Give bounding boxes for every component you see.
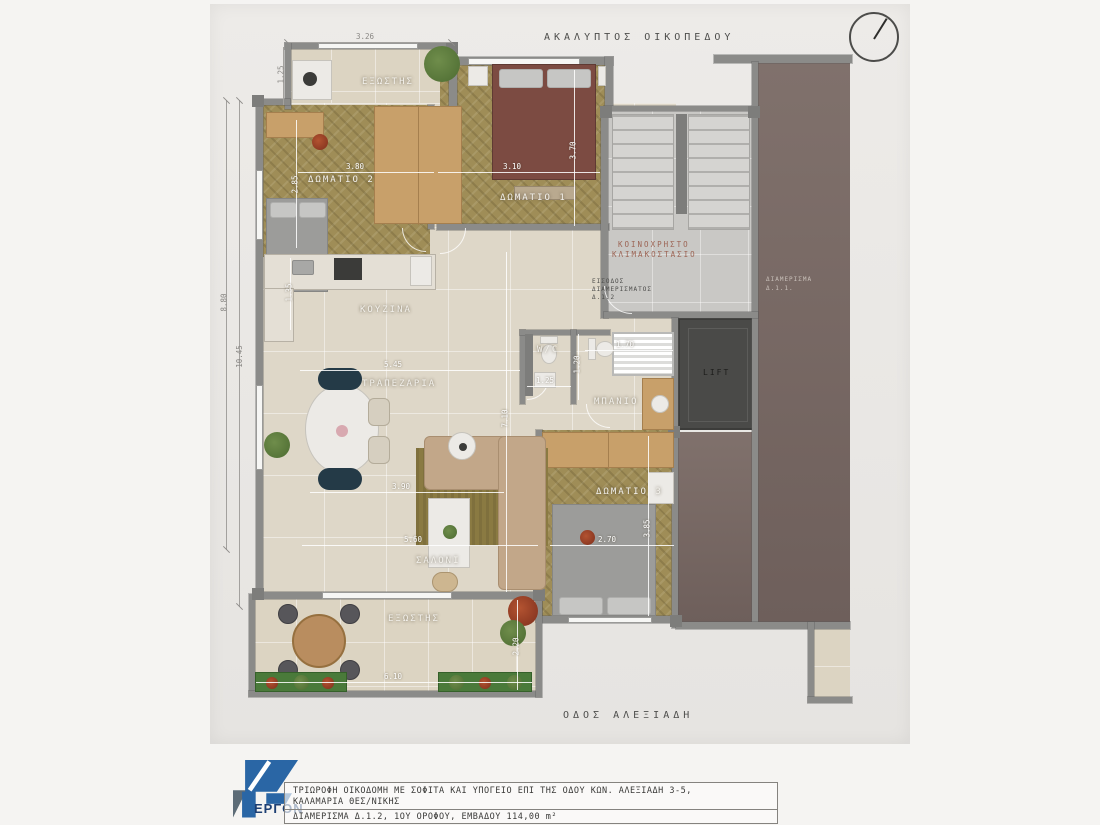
wall-post <box>670 615 682 627</box>
dim-bedroom3-h: 3.85 <box>643 519 652 537</box>
gdim-line <box>226 100 227 550</box>
table-plant <box>443 525 457 539</box>
neighbor-apartment-area-2 <box>676 432 758 622</box>
dim-living-w2: 5.60 <box>404 535 422 544</box>
neighbor-apartment-area <box>757 62 850 622</box>
pouf <box>432 572 458 592</box>
dining-label: ΤΡΑΠΕΖΑΡΙΑ <box>362 379 436 389</box>
fridge <box>410 256 432 286</box>
terrace-chair <box>278 604 298 624</box>
kitchen-label: ΚΟΥΖΙΝΑ <box>360 305 412 315</box>
plant <box>264 432 290 458</box>
dim-wc-w: 1.25 <box>536 376 554 385</box>
stair-flight-right <box>688 114 750 230</box>
wall <box>752 62 758 622</box>
sink <box>292 260 314 275</box>
bedroom2-label: ΔΩΜΑΤΙΟ 2 <box>308 175 375 185</box>
side-table <box>448 432 476 460</box>
bath-vanity <box>642 378 674 430</box>
wall <box>604 106 758 111</box>
wall <box>676 622 850 629</box>
wall-post <box>252 588 264 600</box>
lift-label: LIFT <box>703 368 730 377</box>
title-block: ΕΡΓΟΝ ΤΡΙΩΡΟΦΗ ΟΙΚΟΔΟΜΗ ΜΕ ΣΟΦΙΤΑ ΚΑΙ ΥΠ… <box>218 755 778 821</box>
dim-kitchen-h: 1.35 <box>285 283 294 301</box>
pillow <box>607 597 651 615</box>
pillow <box>270 202 297 218</box>
dim-line <box>550 545 674 546</box>
dim-line <box>310 492 504 493</box>
dim-line <box>585 350 673 351</box>
wall <box>520 330 610 335</box>
dim-bedroom2-h: 2.85 <box>291 175 300 193</box>
title-line2: ΚΑΛΑΜΑΡΙΑ ΘΕΣ/ΝΙΚΗΣ <box>293 797 400 807</box>
window <box>256 385 263 470</box>
wall-post <box>252 95 264 107</box>
street-label: ΟΔΟΣ ΑΛΕΞΙΑΔΗ <box>563 710 693 721</box>
balcony-right-floor <box>812 622 850 702</box>
utility-drum <box>303 72 317 86</box>
wardrobe3 <box>542 432 674 468</box>
north-needle <box>873 18 887 39</box>
floor-plan-sheet: ΑΚΑΛΥΠΤΟΣ ΟΙΚΟΠΕΔΟΥ ΟΔΟΣ ΑΛΕΞΙΑΔΗ <box>0 0 1100 825</box>
dim-bedroom1-h: 3.70 <box>569 141 578 159</box>
gdim-left-small: 1.25 <box>277 65 286 83</box>
dim-bedroom2-w: 3.80 <box>346 162 364 171</box>
stair-flight-left <box>612 114 674 230</box>
stairs-label-1: ΚΟΙΝΟΧΡΗΣΤΟ <box>618 240 690 249</box>
dim-terrace-w: 6.10 <box>384 672 402 681</box>
window <box>318 43 418 49</box>
terrace-table <box>292 614 346 668</box>
table-decor <box>336 425 348 437</box>
dining-chair <box>368 398 390 426</box>
dim-bedroom3-w: 2.70 <box>598 535 616 544</box>
title-line1: ΤΡΙΩΡΟΦΗ ΟΙΚΟΔΟΜΗ ΜΕ ΣΟΦΙΤΑ ΚΑΙ ΥΠΟΓΕΙΟ … <box>293 786 692 796</box>
dining-chair <box>368 436 390 464</box>
wall <box>605 57 613 110</box>
pillow <box>559 597 603 615</box>
shower <box>612 332 674 376</box>
toilet-tank <box>588 338 596 360</box>
bed3 <box>552 504 656 616</box>
window <box>568 617 652 623</box>
dim-line <box>527 386 571 387</box>
plant <box>424 46 460 82</box>
entrance-note-2: ΔΙΑΜΕΡΙΣΜΑΤΟΣ <box>592 286 652 294</box>
wall-post <box>600 106 612 118</box>
wardrobe-divider <box>608 433 609 469</box>
wardrobe-divider <box>418 107 419 225</box>
bathroom-label: ΜΠΑΝΙΟ <box>594 397 639 407</box>
neighbor-label-1: ΔΙΑΜΕΡΙΣΜΑ <box>766 276 812 284</box>
wall-post <box>533 589 545 601</box>
gdim-left-outer: 10.45 <box>235 345 244 368</box>
neighbor-label-2: Δ.1.1. <box>766 285 794 293</box>
window <box>322 592 452 599</box>
wall <box>714 55 852 63</box>
entrance-note-1: ΕΙΣΟΔΟΣ <box>592 278 624 286</box>
cooktop <box>334 258 362 280</box>
balcony-top-label: ΕΞΩΣΤΗΣ <box>362 77 414 87</box>
chair-red <box>312 134 328 150</box>
dim-bedroom1-w: 3.10 <box>503 162 521 171</box>
title-line3: ΔΙΑΜΕΡΙΣΜΑ Δ.1.2, 1ΟΥ ΟΡΟΦΟΥ, ΕΜΒΑΔΟΥ 11… <box>293 812 557 822</box>
title-text-box: ΤΡΙΩΡΟΦΗ ΟΙΚΟΔΟΜΗ ΜΕ ΣΟΦΙΤΑ ΚΑΙ ΥΠΟΓΕΙΟ … <box>284 782 778 824</box>
balcony-bottom-label: ΕΞΩΣΤΗΣ <box>388 614 440 624</box>
pillow <box>299 202 326 218</box>
site-top-label: ΑΚΑΛΥΠΤΟΣ ΟΙΚΟΠΕΔΟΥ <box>544 32 734 43</box>
flower <box>322 677 334 689</box>
terrace-chair <box>340 604 360 624</box>
dim-line <box>256 682 532 683</box>
wall-post <box>748 106 760 118</box>
window <box>256 170 263 240</box>
dim-living-h: 7.10 <box>501 409 510 427</box>
basin <box>651 395 669 413</box>
wc-label: W/C <box>537 345 559 355</box>
pillow <box>547 69 591 88</box>
dim-bath-w: 1.70 <box>616 340 634 349</box>
wall <box>808 622 814 702</box>
gdim-top-width: 3.26 <box>356 32 374 41</box>
bedroom3-label: ΔΩΜΑΤΙΟ 3 <box>596 487 663 497</box>
dim-living-w1: 3.90 <box>392 482 410 491</box>
toilet <box>596 341 614 357</box>
wall <box>808 697 852 703</box>
nightstand <box>468 66 488 86</box>
dining-chair <box>318 368 362 390</box>
north-indicator-icon <box>849 12 899 62</box>
bedroom1-label: ΔΩΜΑΤΙΟ 1 <box>500 193 567 203</box>
dim-line <box>302 545 538 546</box>
pillow <box>499 69 543 88</box>
nightstand <box>598 66 606 86</box>
dim-dining-w: 5.45 <box>384 360 402 369</box>
dining-chair <box>318 468 362 490</box>
living-label: ΣΑΛΟΝΙ <box>416 556 461 566</box>
dim-line <box>298 172 434 173</box>
dim-bath-h: 1.20 <box>573 355 582 373</box>
title-divider <box>285 809 777 810</box>
flower <box>266 677 278 689</box>
gdim-line <box>287 42 452 43</box>
chair-red <box>580 530 595 545</box>
toilet-tank <box>540 336 558 344</box>
entrance-note-3: Δ.1.2 <box>592 294 615 302</box>
stair-spine-wall <box>676 114 687 214</box>
tray <box>459 443 467 451</box>
wardrobe2 <box>374 106 462 224</box>
stairs-label-2: ΚΛΙΜΑΚΟΣΤΑΣΙΟ <box>612 250 697 259</box>
dim-terrace-h: 2.20 <box>512 637 521 655</box>
dim-line <box>300 370 520 371</box>
flower <box>479 677 491 689</box>
dim-line <box>438 172 600 173</box>
gdim-left-inner: 8.80 <box>220 293 229 311</box>
